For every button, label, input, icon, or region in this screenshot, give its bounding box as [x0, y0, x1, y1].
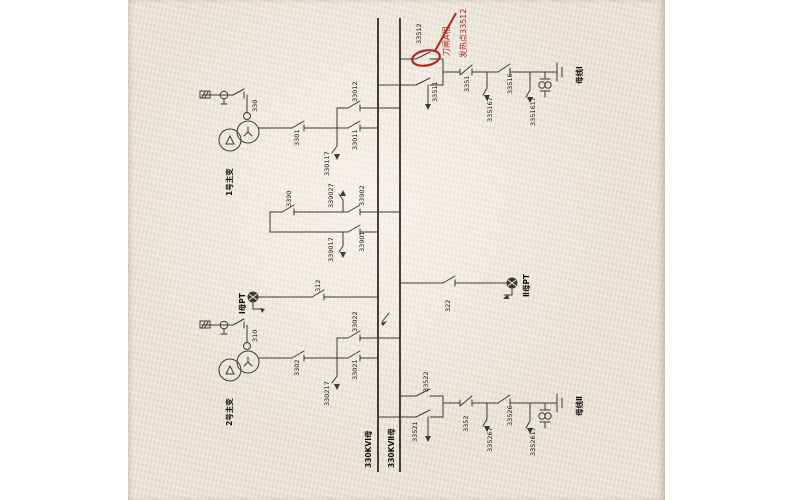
earth-3352617-label: 3352617: [529, 427, 537, 456]
disc-33902-label: 33902: [358, 185, 366, 206]
earth-arrow-icon: [425, 417, 431, 442]
earth-switch-icon: [339, 232, 346, 258]
line2-name-label: 母线Ⅱ: [574, 396, 584, 416]
earth-switch-icon: [332, 128, 340, 160]
bus2-pt-icon: [503, 278, 518, 300]
disc-33901-label: 33901: [358, 231, 366, 252]
disc-33516-label: 33516: [506, 73, 514, 94]
transformer-2-label: 2号主变: [224, 398, 234, 426]
neutral-330-label: 330: [251, 100, 259, 112]
bus2-label: 330KVⅡ母: [387, 428, 396, 468]
disc-33011-label: 33011: [351, 129, 359, 150]
single-line-diagram: 330KVⅠ母 330KVⅡ母: [0, 0, 800, 500]
red-circle-annotation: [411, 48, 441, 68]
bus1-pt-icon: [248, 292, 266, 314]
busbars: 330KVⅠ母 330KVⅡ母: [364, 18, 400, 472]
line-bay-bottom: 33522 33521 3352 335267 33526 3352617 母线…: [378, 371, 584, 456]
transformer-2-icon: [219, 343, 259, 382]
line-bay-top: 33512 33511 3351 335167 33516 3351617 母线…: [378, 23, 584, 126]
breaker-3302-label: 3302: [293, 359, 301, 376]
transformer-bay-top: 330 3301 33011 33012 330117 1号主变: [200, 81, 400, 196]
disc-33522-label: 33522: [422, 371, 430, 392]
neutral-pt-icon: [220, 91, 228, 104]
neutral-pt-icon: [220, 321, 228, 334]
photo-of-diagram: 330KVⅠ母 330KVⅡ母: [0, 0, 800, 500]
disc-33521-label: 33521: [411, 421, 419, 442]
disc-33022-label: 33022: [351, 311, 359, 332]
switch-322-label: 322: [444, 300, 452, 312]
transformer-bay-bottom: 310 3302 33021 33022 330217 2号主变: [200, 311, 400, 426]
earth-switch-icon: [332, 358, 340, 390]
breaker-3352-label: 3352: [462, 415, 470, 432]
earth-switch-icon: [483, 72, 490, 101]
bus1-pt-label: Ⅰ母PT: [238, 292, 247, 314]
switch-3390-label: 3390: [285, 190, 293, 207]
breaker-3301-label: 3301: [293, 129, 301, 146]
switch-312-label: 312: [314, 280, 322, 292]
earth-3351617-label: 3351617: [529, 97, 537, 126]
disc-33021-label: 33021: [351, 359, 359, 380]
bus2-pt-label: Ⅱ母PT: [522, 273, 531, 297]
bus1-label: 330KVⅠ母: [364, 430, 373, 468]
disc-33511-label: 33511: [431, 81, 439, 102]
disc-33526-label: 33526: [506, 405, 514, 426]
line-pt-icon: [539, 403, 551, 428]
transformer-1-label: 1号主变: [224, 168, 234, 196]
disc-33512-label: 33512: [415, 23, 423, 44]
annotation-text-2: 刀闸A相: [441, 27, 451, 56]
transformer-1-icon: [219, 113, 259, 152]
line-terminal-icon: [557, 63, 562, 81]
earth-330217-label: 330217: [323, 381, 331, 406]
line-terminal-icon: [557, 394, 562, 412]
earth-switch-up-icon: [339, 190, 346, 212]
line-pt-icon: [539, 72, 551, 97]
pt-bay-mid: 3390 33902 339027 33901 339017: [270, 183, 400, 262]
annotation-text-1: 发热点33512: [458, 9, 468, 58]
bus-pt-row: Ⅰ母PT 312 322 Ⅱ母PT: [238, 273, 531, 314]
line1-name-label: 母线Ⅰ: [574, 66, 584, 84]
earth-330117-label: 330117: [323, 151, 331, 176]
earth-339027-label: 339027: [327, 183, 335, 208]
earth-335267-label: 335267: [486, 427, 494, 452]
earth-arrow-icon: [381, 313, 389, 326]
neutral-310-label: 310: [251, 330, 259, 342]
earth-339017-label: 339017: [327, 237, 335, 262]
breaker-3351-label: 3351: [463, 75, 471, 92]
disc-33012-label: 33012: [351, 81, 359, 102]
earth-335167-label: 335167: [486, 97, 494, 122]
